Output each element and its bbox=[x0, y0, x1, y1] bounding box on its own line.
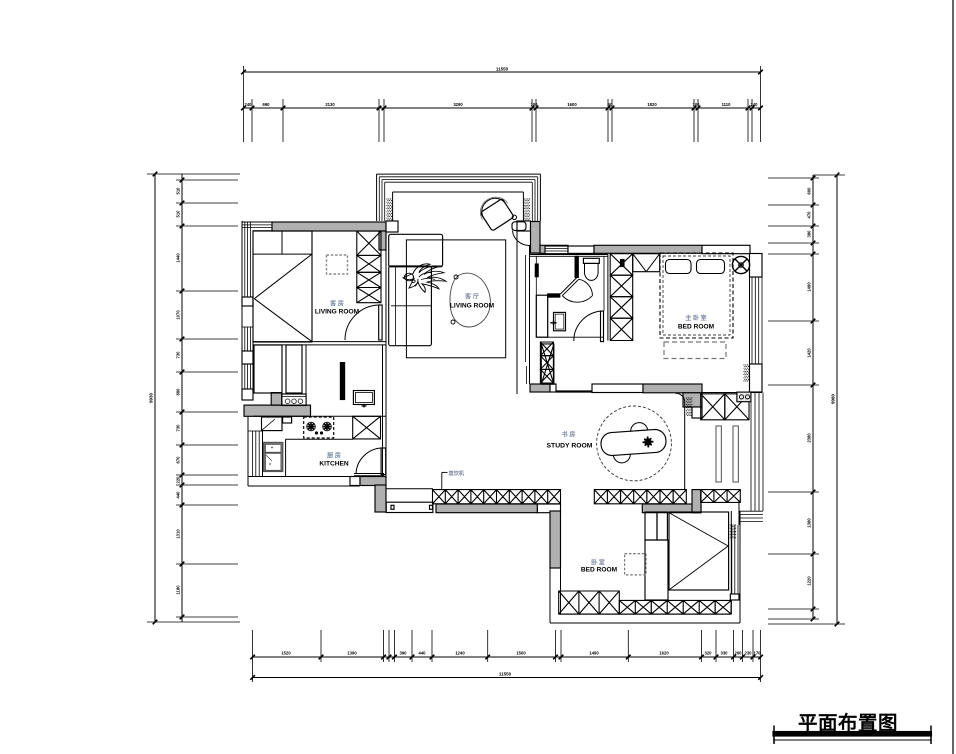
svg-text:170: 170 bbox=[754, 651, 762, 656]
svg-text:2130: 2130 bbox=[325, 102, 335, 107]
svg-text:220: 220 bbox=[176, 476, 181, 484]
svg-text:1490: 1490 bbox=[589, 651, 599, 656]
svg-text:890: 890 bbox=[176, 388, 181, 396]
svg-text:440: 440 bbox=[176, 491, 181, 499]
svg-text:1520: 1520 bbox=[281, 651, 291, 656]
svg-text:1390: 1390 bbox=[347, 651, 357, 656]
svg-text:1220: 1220 bbox=[807, 576, 812, 586]
svg-text:1110: 1110 bbox=[722, 102, 732, 107]
svg-text:LIVING ROOM: LIVING ROOM bbox=[450, 303, 495, 310]
svg-text:STUDY ROOM: STUDY ROOM bbox=[547, 443, 593, 450]
svg-text:LIVING ROOM: LIVING ROOM bbox=[315, 309, 360, 316]
svg-text:330: 330 bbox=[721, 651, 729, 656]
svg-text:KITCHEN: KITCHEN bbox=[319, 461, 349, 468]
svg-text:670: 670 bbox=[176, 456, 181, 464]
svg-text:客 房: 客 房 bbox=[329, 300, 344, 308]
svg-text:9930: 9930 bbox=[149, 392, 154, 403]
svg-text:440: 440 bbox=[419, 651, 427, 656]
svg-text:直饮机: 直饮机 bbox=[449, 469, 465, 477]
svg-text:100: 100 bbox=[531, 102, 539, 107]
svg-text:90: 90 bbox=[608, 102, 613, 107]
svg-text:11550: 11550 bbox=[499, 672, 512, 677]
svg-text:BED ROOM: BED ROOM bbox=[581, 567, 618, 574]
svg-text:1620: 1620 bbox=[659, 651, 669, 656]
svg-text:卧 室: 卧 室 bbox=[591, 559, 605, 567]
svg-text:230: 230 bbox=[745, 651, 753, 656]
svg-text:510: 510 bbox=[176, 187, 181, 195]
svg-text:1380: 1380 bbox=[807, 518, 812, 528]
svg-text:2380: 2380 bbox=[807, 433, 812, 443]
svg-text:510: 510 bbox=[176, 210, 181, 218]
svg-text:BED ROOM: BED ROOM bbox=[678, 324, 715, 331]
svg-text:1180: 1180 bbox=[176, 585, 181, 595]
svg-text:9980: 9980 bbox=[831, 393, 836, 404]
svg-text:1600: 1600 bbox=[567, 102, 577, 107]
svg-text:1490: 1490 bbox=[807, 282, 812, 292]
svg-text:240: 240 bbox=[751, 102, 759, 107]
svg-text:730: 730 bbox=[176, 424, 181, 432]
svg-text:厨 房: 厨 房 bbox=[327, 452, 341, 460]
svg-text:1310: 1310 bbox=[176, 529, 181, 539]
svg-text:1440: 1440 bbox=[176, 253, 181, 263]
svg-text:100: 100 bbox=[693, 102, 701, 107]
svg-text:1500: 1500 bbox=[516, 651, 526, 656]
svg-text:320: 320 bbox=[705, 651, 713, 656]
svg-text:1070: 1070 bbox=[176, 310, 181, 320]
svg-text:690: 690 bbox=[263, 102, 271, 107]
svg-text:1420: 1420 bbox=[807, 348, 812, 358]
svg-text:200: 200 bbox=[735, 651, 743, 656]
svg-text:600: 600 bbox=[807, 187, 812, 195]
svg-text:730: 730 bbox=[176, 351, 181, 359]
svg-text:240: 240 bbox=[245, 102, 253, 107]
svg-text:书 房: 书 房 bbox=[562, 431, 576, 439]
svg-text:11550: 11550 bbox=[496, 67, 509, 72]
svg-text:470: 470 bbox=[807, 211, 812, 219]
svg-text:390: 390 bbox=[400, 651, 408, 656]
svg-text:380: 380 bbox=[807, 230, 812, 238]
svg-text:客 厅: 客 厅 bbox=[464, 293, 479, 301]
svg-text:1240: 1240 bbox=[455, 651, 465, 656]
svg-text:主 卧 室: 主 卧 室 bbox=[685, 314, 706, 322]
svg-text:1820: 1820 bbox=[647, 102, 657, 107]
svg-text:3290: 3290 bbox=[453, 102, 463, 107]
